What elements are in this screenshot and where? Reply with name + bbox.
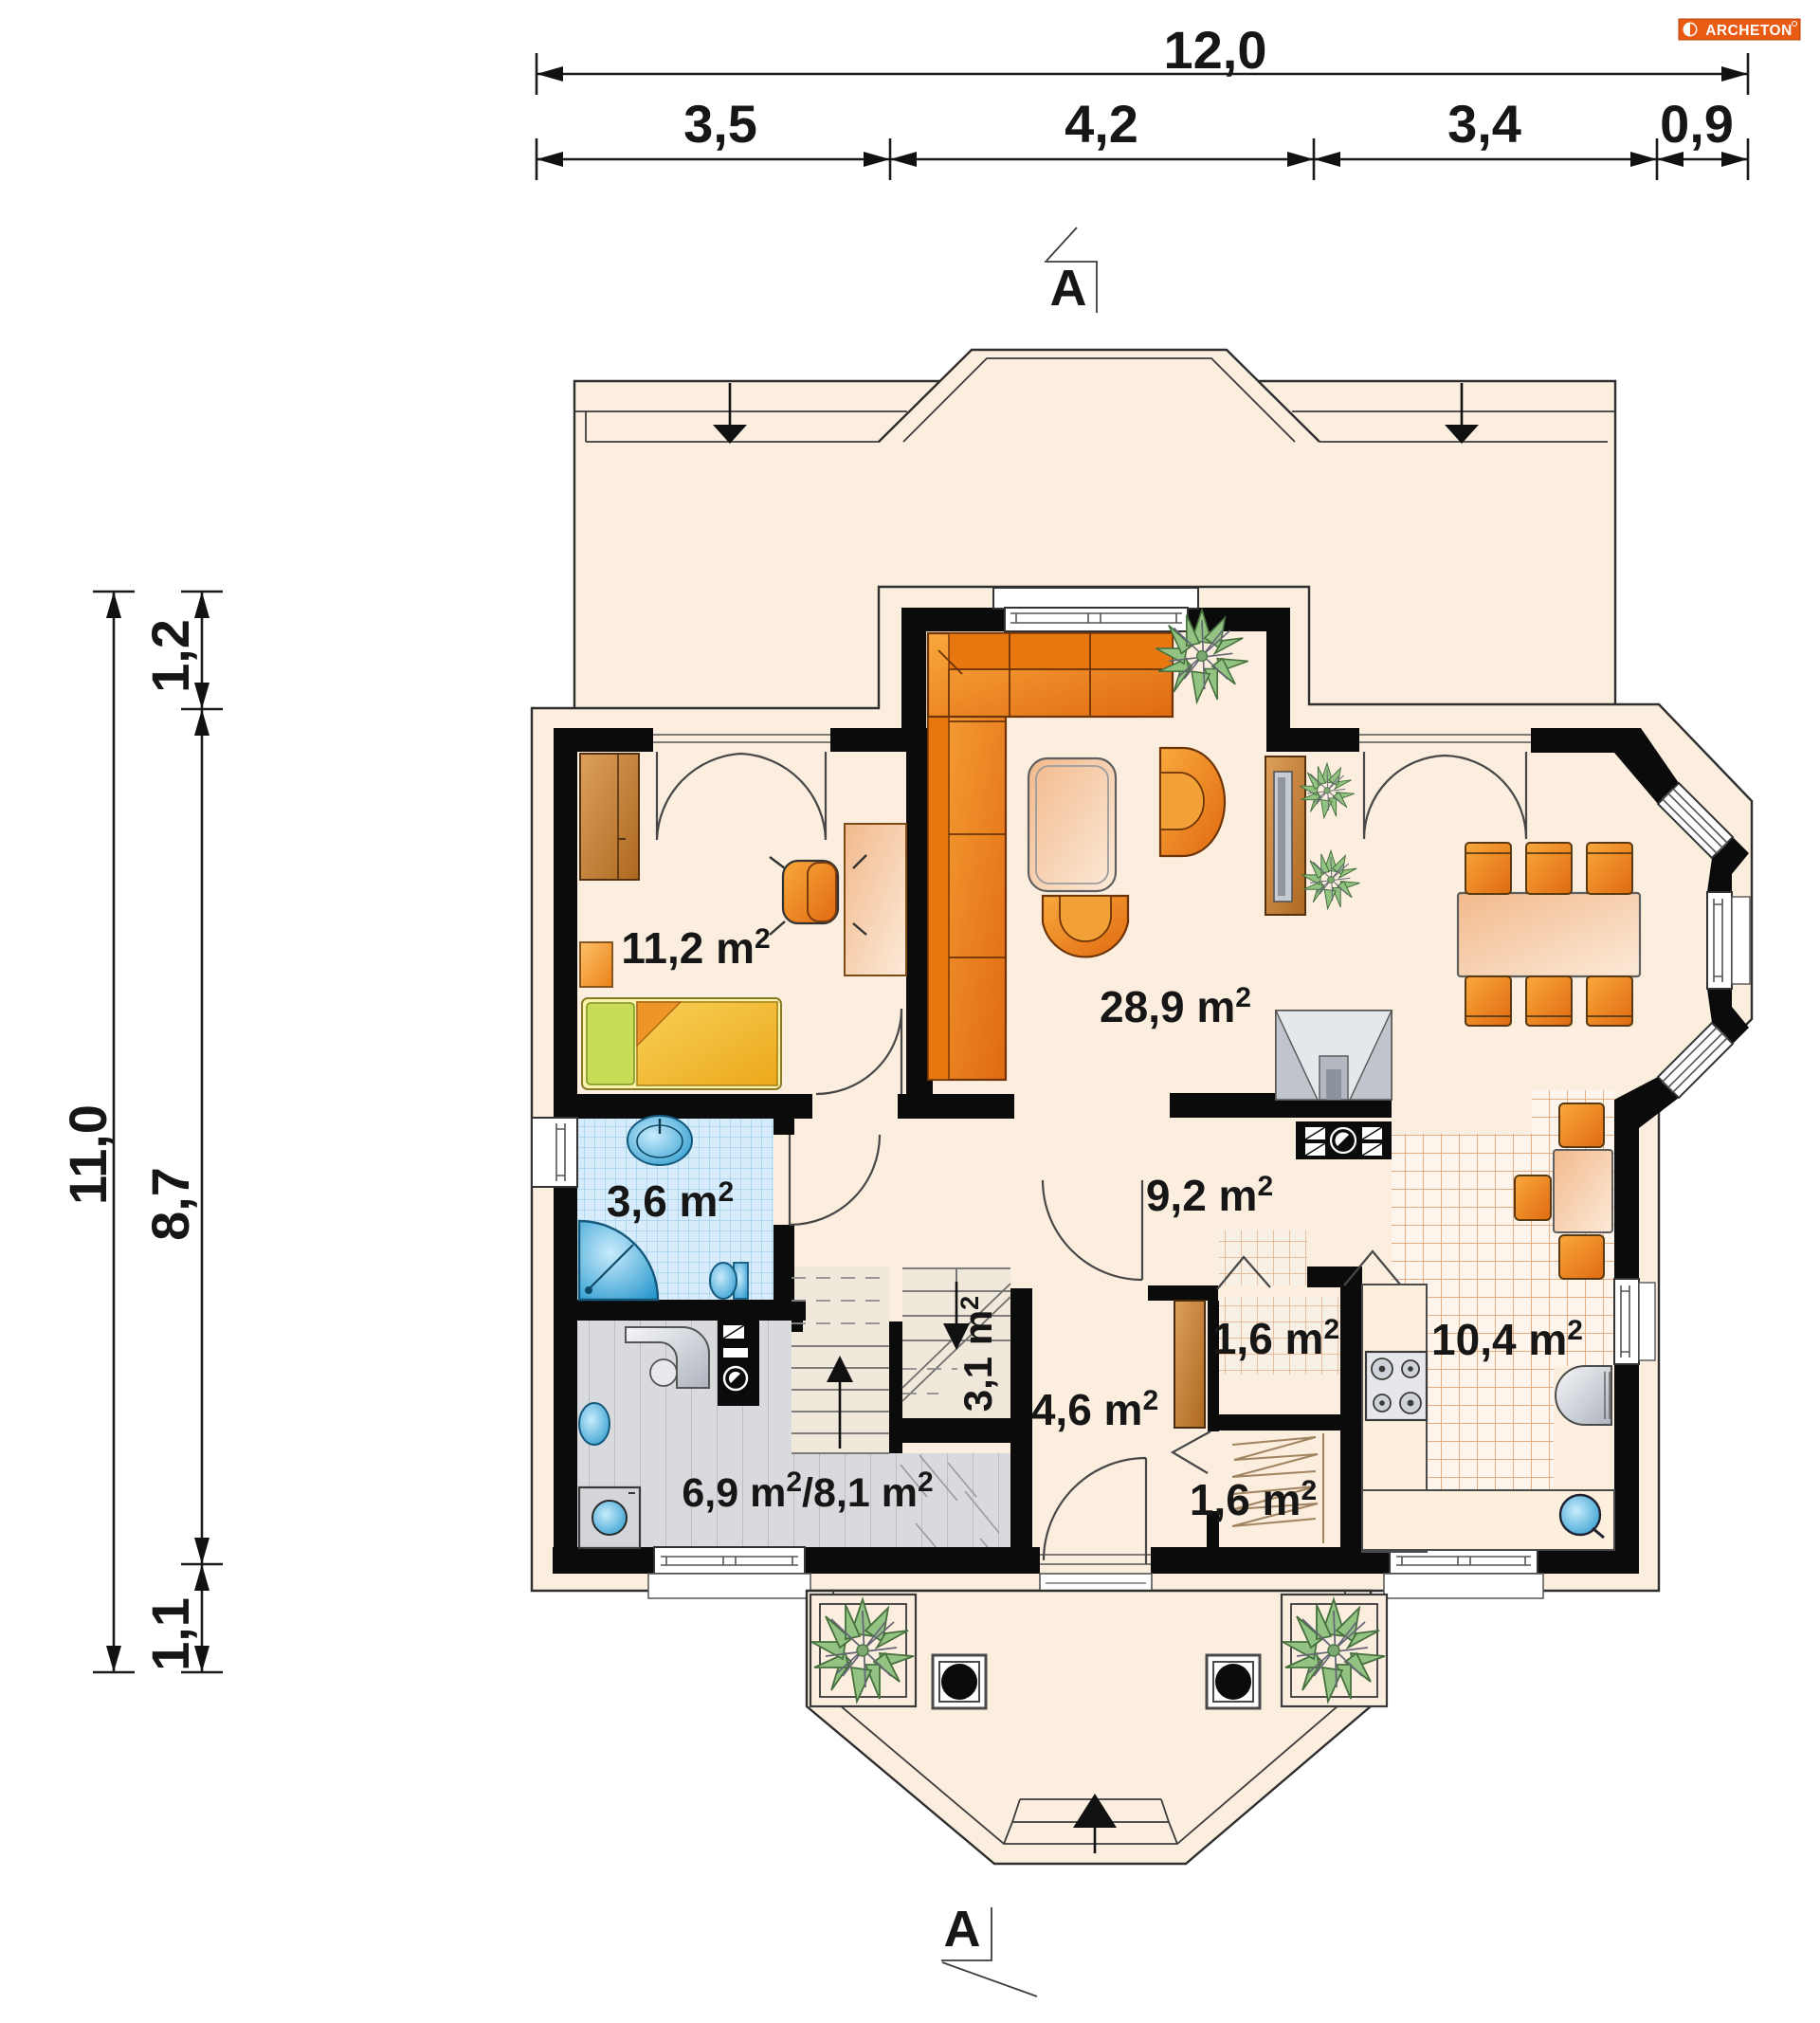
svg-text:3,4: 3,4: [1447, 94, 1521, 154]
svg-text:9,2 m2: 9,2 m2: [1146, 1171, 1273, 1220]
svg-text:A: A: [944, 1901, 981, 1958]
svg-text:11,2 m2: 11,2 m2: [621, 923, 770, 973]
svg-text:10,4 m2: 10,4 m2: [1431, 1315, 1583, 1364]
svg-text:A: A: [1050, 260, 1087, 317]
svg-text:3,6 m2: 3,6 m2: [607, 1176, 734, 1226]
svg-text:1,1: 1,1: [140, 1597, 200, 1671]
svg-text:1,2: 1,2: [140, 619, 200, 693]
svg-text:0,9: 0,9: [1660, 94, 1734, 154]
svg-text:3,1 m2: 3,1 m2: [955, 1296, 1000, 1412]
svg-text:11,0: 11,0: [58, 1104, 118, 1205]
svg-text:1,6 m2: 1,6 m2: [1212, 1314, 1339, 1363]
svg-text:28,9 m2: 28,9 m2: [1100, 982, 1251, 1031]
svg-text:ARCHETON: ARCHETON: [1705, 23, 1793, 39]
svg-text:12,0: 12,0: [1164, 20, 1267, 80]
svg-text:8,7: 8,7: [140, 1167, 200, 1241]
svg-text:3,5: 3,5: [683, 94, 757, 154]
svg-text:1,6 m2: 1,6 m2: [1190, 1475, 1317, 1524]
svg-text:4,6 m2: 4,6 m2: [1031, 1385, 1158, 1434]
svg-text:4,2: 4,2: [1065, 94, 1138, 154]
svg-text:6,9 m2/8,1 m2: 6,9 m2/8,1 m2: [682, 1467, 933, 1516]
